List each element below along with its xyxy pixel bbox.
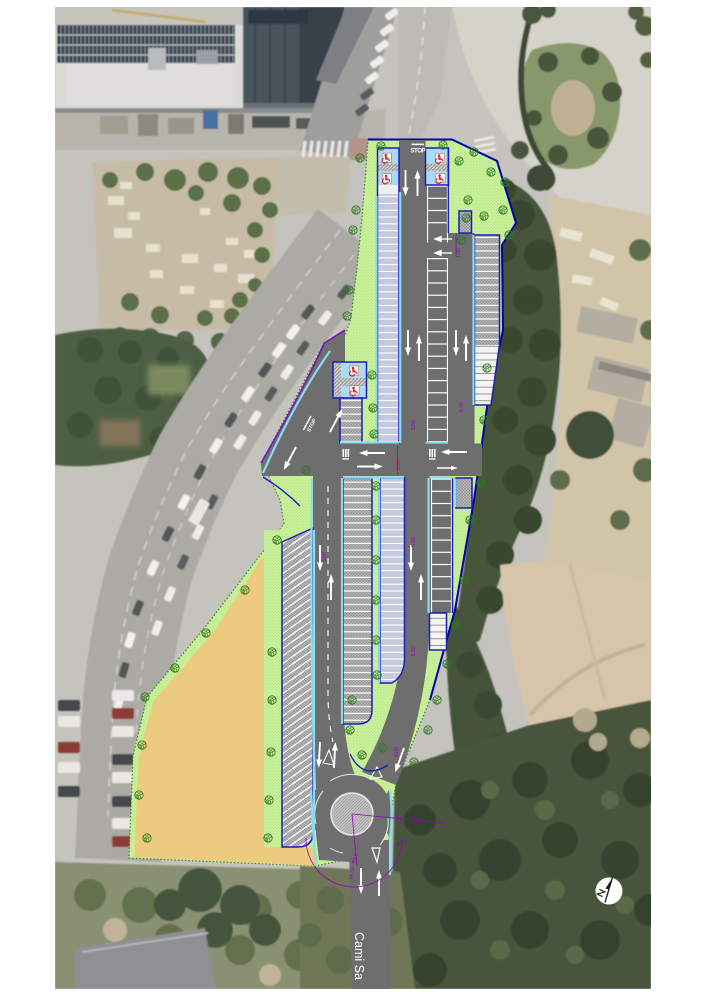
svg-text:STOP: STOP (410, 148, 425, 155)
svg-text:1.00: 1.00 (456, 248, 462, 258)
svg-text:5.50: 5.50 (411, 420, 417, 430)
svg-text:5.50: 5.50 (411, 646, 417, 656)
svg-text:Cami Sa: Cami Sa (352, 932, 366, 980)
svg-text:8.00: 8.00 (394, 747, 400, 757)
svg-text:5.50: 5.50 (411, 537, 417, 547)
svg-text:5.00: 5.00 (459, 402, 465, 412)
svg-text:6.00: 6.00 (396, 460, 402, 470)
svg-text:5.00: 5.00 (322, 552, 328, 562)
